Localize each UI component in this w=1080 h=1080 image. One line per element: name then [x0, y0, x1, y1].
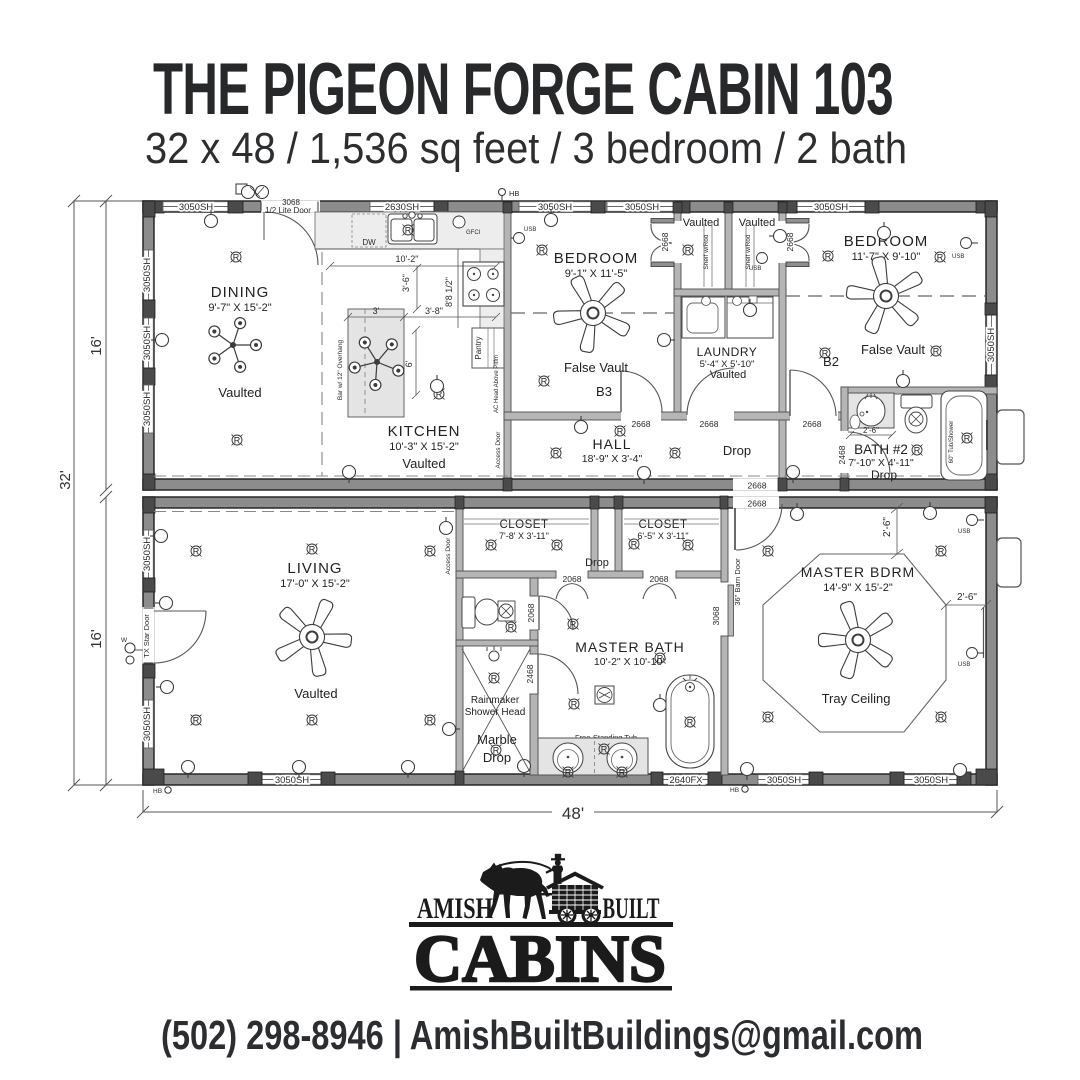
svg-text:Vaulted: Vaulted [683, 217, 720, 229]
svg-text:GFCI: GFCI [466, 230, 481, 236]
svg-text:3050SH: 3050SH [767, 775, 801, 786]
svg-text:Access Door: Access Door [445, 537, 452, 575]
svg-text:DW: DW [362, 238, 376, 247]
svg-text:48': 48' [562, 804, 584, 823]
svg-text:Pantry: Pantry [474, 336, 483, 359]
svg-text:36" Barn Door: 36" Barn Door [733, 558, 742, 606]
svg-text:Drop: Drop [871, 468, 897, 482]
svg-text:2640FX: 2640FX [669, 775, 703, 786]
svg-text:2668: 2668 [660, 232, 670, 251]
svg-text:Access Door: Access Door [495, 431, 502, 469]
svg-text:1/2 Lite Door: 1/2 Lite Door [265, 206, 311, 215]
svg-text:Vaulted: Vaulted [218, 385, 261, 400]
svg-text:3050SH: 3050SH [142, 392, 153, 426]
svg-text:B3: B3 [596, 384, 612, 399]
svg-text:8'8 1/2": 8'8 1/2" [444, 277, 454, 307]
svg-text:W: W [121, 637, 128, 644]
svg-text:CLOSET: CLOSET [638, 519, 687, 531]
svg-text:Drop: Drop [723, 443, 751, 458]
svg-text:DINING: DINING [211, 284, 270, 301]
svg-text:CABINS: CABINS [414, 922, 666, 996]
svg-text:Shower Head: Shower Head [465, 707, 526, 718]
svg-text:Shelf w/Rod: Shelf w/Rod [703, 234, 710, 269]
svg-text:10'-2": 10'-2" [396, 254, 419, 264]
svg-text:16': 16' [88, 629, 105, 649]
svg-text:2668: 2668 [803, 419, 822, 429]
svg-text:2068: 2068 [526, 603, 536, 622]
svg-text:3050SH: 3050SH [914, 775, 948, 786]
svg-text:Vaulted: Vaulted [402, 456, 445, 471]
svg-text:2'-6": 2'-6" [882, 517, 893, 537]
svg-text:Vaulted: Vaulted [294, 686, 337, 701]
svg-text:3050SH: 3050SH [142, 326, 153, 360]
svg-text:3050SH: 3050SH [814, 202, 848, 213]
svg-text:CLOSET: CLOSET [499, 519, 548, 531]
svg-text:AC Head Above Pltfm: AC Head Above Pltfm [494, 355, 500, 413]
svg-text:BUILT: BUILT [603, 892, 660, 925]
svg-text:BATH #2: BATH #2 [854, 442, 908, 457]
svg-text:18'-9" X 3'-4": 18'-9" X 3'-4" [582, 453, 643, 465]
svg-text:3'-6": 3'-6" [401, 274, 411, 292]
svg-text:LIVING: LIVING [287, 560, 342, 577]
svg-text:2'-6": 2'-6" [957, 592, 977, 603]
svg-text:Tray Ceiling: Tray Ceiling [822, 691, 891, 706]
svg-text:2468: 2468 [525, 664, 535, 683]
svg-text:3050SH: 3050SH [986, 328, 997, 362]
svg-text:10'-3" X 15'-2": 10'-3" X 15'-2" [389, 441, 459, 453]
svg-text:9'-7" X 15'-2": 9'-7" X 15'-2" [208, 302, 271, 314]
svg-text:BEDROOM: BEDROOM [554, 250, 639, 267]
svg-text:HB: HB [153, 788, 162, 795]
svg-text:3050SH: 3050SH [142, 707, 153, 741]
svg-text:Bar w/ 12" Overhang: Bar w/ 12" Overhang [337, 340, 344, 401]
svg-text:2068: 2068 [650, 574, 669, 584]
svg-text:60" Tub/Shower: 60" Tub/Shower [949, 421, 955, 464]
svg-text:3050SH: 3050SH [538, 202, 572, 213]
svg-text:3'-8": 3'-8" [425, 306, 443, 316]
svg-text:2'-6": 2'-6" [863, 426, 879, 435]
svg-text:HB: HB [509, 189, 519, 198]
svg-text:False Vault: False Vault [564, 360, 628, 375]
svg-text:3050SH: 3050SH [142, 258, 153, 292]
svg-text:TX Star Door: TX Star Door [142, 614, 151, 658]
svg-text:USB: USB [958, 662, 970, 668]
svg-text:3': 3' [373, 306, 380, 316]
svg-text:2630SH: 2630SH [385, 202, 419, 213]
svg-text:32': 32' [57, 470, 74, 490]
svg-text:USB: USB [952, 254, 964, 260]
svg-text:HB: HB [730, 787, 739, 794]
svg-text:32 x 48 / 1,536 sq feet / 3 be: 32 x 48 / 1,536 sq feet / 3 bedroom / 2 … [145, 124, 907, 173]
svg-text:Vaulted: Vaulted [739, 217, 776, 229]
svg-text:MASTER BDRM: MASTER BDRM [801, 564, 915, 580]
svg-text:3050SH: 3050SH [179, 202, 213, 213]
svg-text:2668: 2668 [748, 499, 767, 509]
svg-text:Drop: Drop [585, 557, 609, 569]
svg-text:(502) 298-8946 | AmishBuiltBui: (502) 298-8946 | AmishBuiltBuildings@gma… [161, 1012, 923, 1058]
svg-text:LAUNDRY: LAUNDRY [697, 345, 758, 359]
svg-text:MASTER BATH: MASTER BATH [575, 639, 685, 655]
svg-text:AMISH: AMISH [417, 892, 493, 925]
svg-text:2668: 2668 [700, 419, 719, 429]
svg-text:17'-0" X 15'-2": 17'-0" X 15'-2" [280, 578, 350, 590]
svg-text:3050SH: 3050SH [142, 537, 153, 571]
svg-text:2068: 2068 [563, 574, 582, 584]
svg-text:KITCHEN: KITCHEN [388, 423, 461, 440]
svg-text:14'-9" X 15'-2": 14'-9" X 15'-2" [823, 582, 893, 594]
svg-text:USB: USB [524, 227, 536, 233]
svg-text:7'-8' X 3'-11'': 7'-8' X 3'-11'' [499, 531, 549, 541]
svg-text:USB: USB [958, 529, 970, 535]
svg-text:HALL: HALL [592, 436, 631, 452]
svg-text:Shelf w/Rod: Shelf w/Rod [745, 234, 752, 269]
svg-text:USB: USB [749, 266, 761, 272]
svg-text:2668: 2668 [632, 419, 651, 429]
svg-text:2668: 2668 [748, 481, 767, 491]
svg-text:False Vault: False Vault [861, 342, 925, 357]
svg-text:Rainmaker: Rainmaker [471, 695, 520, 706]
svg-text:Vaulted: Vaulted [710, 369, 747, 381]
svg-text:3050SH: 3050SH [625, 202, 659, 213]
svg-text:6'-5" X 3'-11": 6'-5" X 3'-11" [637, 531, 688, 541]
svg-text:6': 6' [404, 360, 414, 367]
svg-text:16': 16' [88, 336, 105, 356]
svg-text:11'-7" X 9'-10": 11'-7" X 9'-10" [852, 251, 921, 263]
svg-text:3068: 3068 [711, 606, 721, 625]
svg-text:2468: 2468 [837, 445, 847, 464]
svg-text:3050SH: 3050SH [275, 775, 309, 786]
svg-text:THE PIGEON FORGE CABIN 103: THE PIGEON FORGE CABIN 103 [153, 49, 893, 130]
